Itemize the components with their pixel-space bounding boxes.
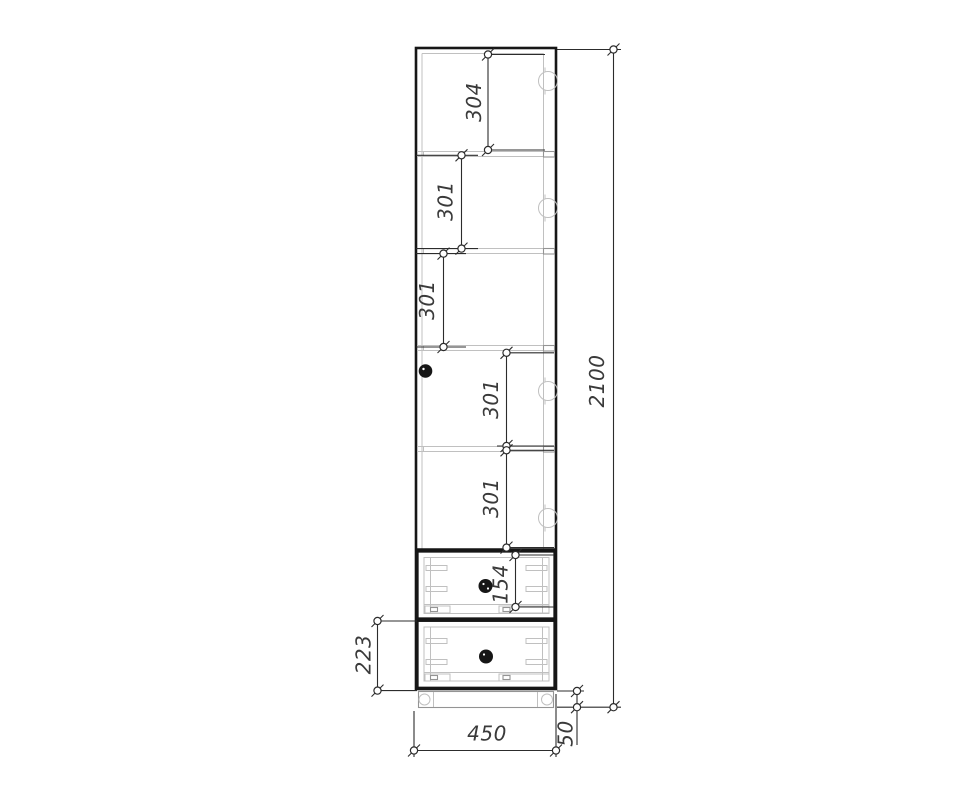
dimension-label-223: 223 xyxy=(352,635,376,675)
shelf xyxy=(418,346,555,352)
drawer-2 xyxy=(418,621,555,688)
hinges xyxy=(539,68,558,532)
hinge-symbol xyxy=(539,195,558,222)
dimension-label-301: 301 xyxy=(434,181,458,221)
cabinet-technical-drawing: 304 301 301 301 301 xyxy=(0,0,978,800)
plinth xyxy=(419,692,554,708)
dimension-shelf-301-4: 301 xyxy=(479,444,554,553)
door-knob xyxy=(419,364,433,378)
dimension-label-304: 304 xyxy=(462,82,486,122)
shelf-pin-right xyxy=(544,447,555,453)
dimension-label-2100: 2100 xyxy=(585,355,609,408)
dimension-label-301: 301 xyxy=(415,280,439,320)
adjustable-foot xyxy=(542,694,553,705)
shelf-pin-right xyxy=(544,249,555,255)
dimension-overall-width-450: 450 xyxy=(408,694,562,757)
plinth-outline xyxy=(419,692,554,708)
dimension-label-301: 301 xyxy=(479,379,503,419)
hinge-symbol xyxy=(539,68,558,95)
shelf xyxy=(418,447,555,453)
dimension-shelf-301-2: 301 xyxy=(415,248,466,353)
hinge-cup-circle xyxy=(539,72,558,91)
dimension-shelf-304: 304 xyxy=(462,49,545,157)
knob-highlight xyxy=(483,653,485,655)
dimension-label-50: 50 xyxy=(554,720,578,746)
hinge-cup-circle xyxy=(539,382,558,401)
dimension-drawer-223: 223 xyxy=(352,615,418,697)
dimension-label-301: 301 xyxy=(479,478,503,518)
hinge-symbol xyxy=(539,378,558,405)
dimension-shelf-301-1: 301 xyxy=(416,149,478,254)
hinge-cup-circle xyxy=(539,509,558,528)
shelf-pin-left xyxy=(418,346,424,351)
hinge-symbol xyxy=(539,505,558,532)
knob-highlight xyxy=(482,583,484,585)
shelf-pin-right xyxy=(544,346,555,352)
shelf-pin-left xyxy=(418,249,424,254)
adjustable-foot xyxy=(419,694,430,705)
drawer-knob xyxy=(479,650,493,664)
hinge-cup-circle xyxy=(539,199,558,218)
drawer-1 xyxy=(418,552,555,619)
door-handle xyxy=(419,364,433,378)
dimension-label-450: 450 xyxy=(467,722,507,746)
knob-highlight xyxy=(422,368,424,370)
drawing-canvas: 304 301 301 301 301 xyxy=(0,0,978,800)
shelf-pin-right xyxy=(544,152,555,158)
shelf-pin-left xyxy=(418,447,424,452)
dimension-plinth-50: 50 xyxy=(554,685,585,747)
dimension-label-154: 154 xyxy=(489,564,513,604)
dimension-overall-height-2100: 2100 xyxy=(557,44,621,714)
